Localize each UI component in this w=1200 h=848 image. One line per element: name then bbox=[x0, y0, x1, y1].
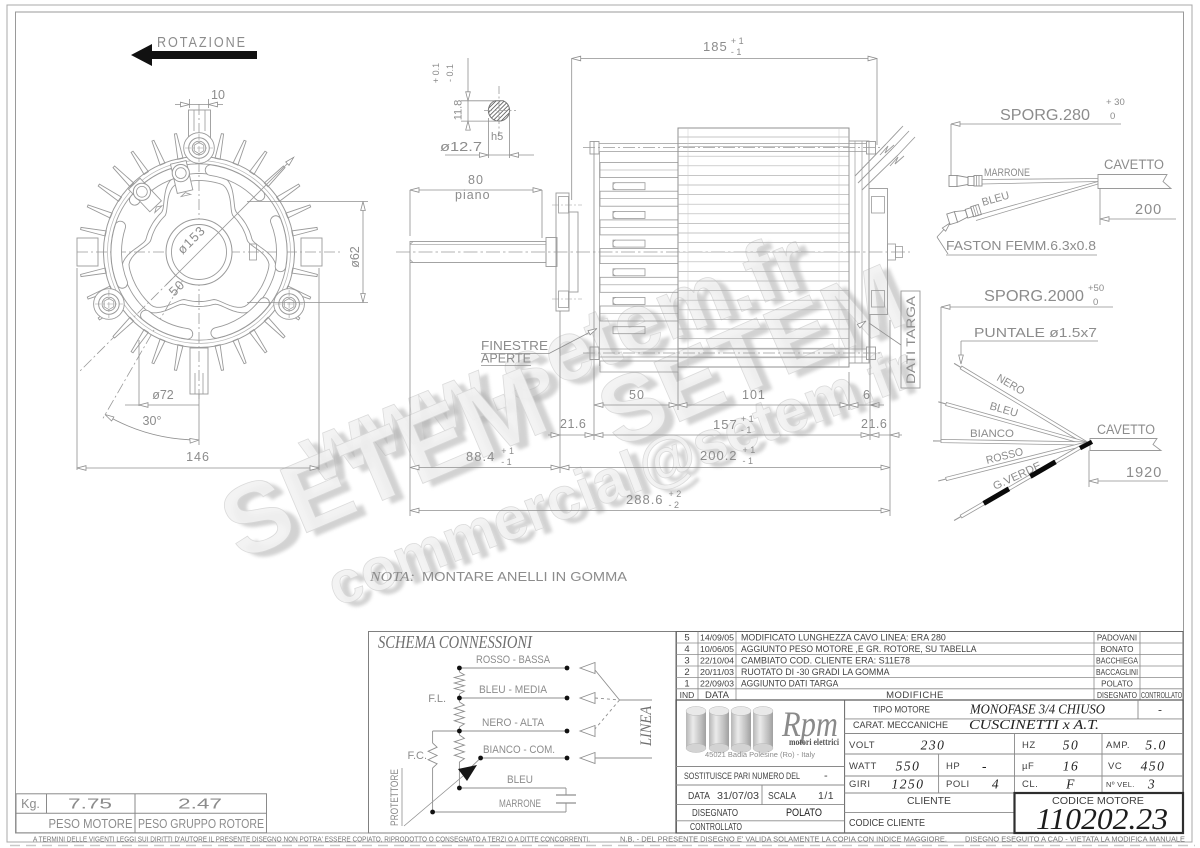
svg-text:200: 200 bbox=[1135, 202, 1162, 218]
svg-text:0: 0 bbox=[1110, 111, 1115, 122]
svg-text:20/11/03: 20/11/03 bbox=[700, 668, 735, 677]
svg-text:SPORG.280: SPORG.280 bbox=[1000, 107, 1090, 124]
svg-text:WATT: WATT bbox=[849, 761, 877, 772]
svg-text:14/09/05: 14/09/05 bbox=[700, 634, 735, 643]
svg-text:SPORG.2000: SPORG.2000 bbox=[984, 288, 1084, 305]
svg-text:µF: µF bbox=[1022, 761, 1034, 772]
svg-text:7.75: 7.75 bbox=[68, 796, 112, 813]
svg-text:200.2: 200.2 bbox=[700, 448, 738, 463]
svg-text:GIRI: GIRI bbox=[849, 779, 871, 790]
svg-text:PADOVANI: PADOVANI bbox=[1097, 634, 1137, 643]
svg-text:SCALA: SCALA bbox=[768, 790, 796, 802]
svg-text:AGGIUNTO PESO MOTORE ,E GR. RO: AGGIUNTO PESO MOTORE ,E GR. ROTORE, SU T… bbox=[741, 644, 977, 655]
svg-text:CAVETTO: CAVETTO bbox=[1104, 157, 1164, 172]
svg-text:BIANCO: BIANCO bbox=[970, 428, 1014, 440]
svg-text:50: 50 bbox=[1063, 738, 1080, 753]
svg-text:VC: VC bbox=[1108, 761, 1122, 772]
svg-text:motori elettrici: motori elettrici bbox=[789, 738, 839, 748]
svg-text:0: 0 bbox=[1093, 297, 1098, 308]
svg-text:TIPO MOTORE: TIPO MOTORE bbox=[873, 705, 930, 716]
svg-text:+ 2: + 2 bbox=[669, 489, 682, 499]
svg-text:ROSSO - BASSA: ROSSO - BASSA bbox=[476, 654, 551, 666]
svg-text:+ 30: + 30 bbox=[1106, 97, 1125, 108]
svg-text:SCHEMA CONNESSIONI: SCHEMA CONNESSIONI bbox=[378, 632, 533, 652]
svg-text:F: F bbox=[1065, 777, 1076, 792]
svg-text:+ 0.1: + 0.1 bbox=[431, 63, 441, 83]
svg-text:Kg.: Kg. bbox=[21, 797, 40, 811]
svg-text:5: 5 bbox=[684, 633, 689, 644]
svg-text:-: - bbox=[1158, 703, 1162, 717]
svg-text:MONTARE ANELLI IN GOMMA: MONTARE ANELLI IN GOMMA bbox=[422, 569, 627, 584]
svg-text:MARRONE: MARRONE bbox=[984, 167, 1030, 179]
svg-text:- 1: - 1 bbox=[741, 425, 752, 435]
svg-text:VOLT: VOLT bbox=[849, 740, 875, 751]
svg-text:MONOFASE 3/4 CHIUSO: MONOFASE 3/4 CHIUSO bbox=[969, 703, 1105, 718]
svg-text:BIANCO - COM.: BIANCO - COM. bbox=[483, 744, 555, 756]
svg-text:30°: 30° bbox=[143, 414, 162, 428]
svg-text:16: 16 bbox=[1063, 759, 1080, 774]
svg-text:+ 1: + 1 bbox=[501, 446, 514, 456]
svg-text:POLI: POLI bbox=[946, 779, 970, 790]
svg-text:BLEU - MEDIA: BLEU - MEDIA bbox=[479, 684, 548, 696]
svg-text:-: - bbox=[824, 770, 828, 782]
svg-text:PESO GRUPPO ROTORE: PESO GRUPPO ROTORE bbox=[138, 817, 264, 831]
svg-text:22/09/03: 22/09/03 bbox=[700, 680, 735, 689]
svg-text:CUSCINETTI x A.T.: CUSCINETTI x A.T. bbox=[969, 718, 1099, 733]
svg-text:1: 1 bbox=[684, 679, 689, 690]
svg-text:HZ: HZ bbox=[1022, 740, 1036, 751]
svg-text:2: 2 bbox=[684, 667, 689, 678]
svg-text:N.B. - DEL PRESENTE DISEGNO E': N.B. - DEL PRESENTE DISEGNO E' VALIDA SO… bbox=[620, 835, 947, 844]
svg-text:45021 Badia Polesine (Ro) - It: 45021 Badia Polesine (Ro) - Italy bbox=[705, 752, 816, 759]
svg-text:+ 1: + 1 bbox=[731, 36, 744, 46]
svg-text:NERO - ALTA: NERO - ALTA bbox=[482, 717, 545, 729]
svg-text:31/07/03: 31/07/03 bbox=[717, 790, 759, 802]
svg-text:21.6: 21.6 bbox=[861, 417, 887, 431]
svg-text:3: 3 bbox=[684, 656, 689, 667]
svg-text:+ 1: + 1 bbox=[741, 414, 754, 424]
svg-text:CODICE CLIENTE: CODICE CLIENTE bbox=[849, 817, 925, 829]
svg-text:CL.: CL. bbox=[1022, 779, 1038, 790]
svg-text:10: 10 bbox=[211, 88, 225, 102]
svg-text:SOSTITUISCE PARI NUMERO DEL: SOSTITUISCE PARI NUMERO DEL bbox=[684, 771, 800, 782]
svg-text:APERTE: APERTE bbox=[481, 352, 531, 366]
svg-text:BACCHIEGA: BACCHIEGA bbox=[1096, 657, 1139, 666]
svg-text:11.8: 11.8 bbox=[453, 100, 465, 121]
svg-text:550: 550 bbox=[896, 759, 921, 774]
svg-text:AMP.: AMP. bbox=[1106, 740, 1130, 751]
svg-text:IND: IND bbox=[680, 690, 695, 700]
svg-text:- 1: - 1 bbox=[501, 457, 512, 467]
svg-text:CAMBIATO COD. CLIENTE ERA: S11: CAMBIATO COD. CLIENTE ERA: S11E78 bbox=[741, 656, 910, 667]
svg-text:piano: piano bbox=[455, 188, 491, 202]
svg-text:3: 3 bbox=[1147, 777, 1156, 792]
svg-text:MARRONE: MARRONE bbox=[499, 798, 541, 810]
svg-text:- 0.1: - 0.1 bbox=[445, 64, 455, 82]
svg-text:MODIFICHE: MODIFICHE bbox=[886, 690, 944, 701]
svg-text:288.6: 288.6 bbox=[626, 492, 664, 507]
svg-text:Nº VEL.: Nº VEL. bbox=[1106, 780, 1135, 789]
svg-text:DATI TARGA: DATI TARGA bbox=[906, 296, 918, 384]
svg-text:BLEU: BLEU bbox=[507, 774, 533, 786]
svg-text:+ 1: + 1 bbox=[743, 445, 756, 455]
svg-text:50: 50 bbox=[629, 388, 645, 402]
svg-text:BONATO: BONATO bbox=[1100, 645, 1133, 654]
svg-text:ø62: ø62 bbox=[348, 246, 362, 268]
svg-text:21.6: 21.6 bbox=[560, 417, 586, 431]
svg-text:CARAT. MECCANICHE: CARAT. MECCANICHE bbox=[853, 720, 948, 731]
svg-text:157: 157 bbox=[713, 417, 738, 432]
svg-text:FASTON FEMM.6.3x0.8: FASTON FEMM.6.3x0.8 bbox=[946, 238, 1096, 253]
svg-text:h5: h5 bbox=[491, 131, 503, 143]
svg-text:PESO MOTORE: PESO MOTORE bbox=[49, 817, 133, 831]
svg-text:1250: 1250 bbox=[892, 777, 925, 792]
svg-text:1920: 1920 bbox=[1126, 465, 1162, 481]
svg-text:POLATO: POLATO bbox=[786, 807, 822, 819]
svg-text:MODIFICATO LUNGHEZZA CAVO LINE: MODIFICATO LUNGHEZZA CAVO LINEA: ERA 280 bbox=[741, 633, 946, 644]
svg-text:22/10/04: 22/10/04 bbox=[700, 657, 735, 666]
svg-text:80: 80 bbox=[468, 173, 484, 187]
svg-text:1/1: 1/1 bbox=[818, 790, 834, 802]
svg-text:RUOTATO DI -30 GRADI LA GOMMA: RUOTATO DI -30 GRADI LA GOMMA bbox=[741, 667, 890, 678]
svg-text:ø72: ø72 bbox=[152, 388, 174, 402]
svg-text:- 1: - 1 bbox=[743, 456, 754, 466]
svg-text:- 2: - 2 bbox=[669, 500, 680, 510]
svg-text:ROTAZIONE: ROTAZIONE bbox=[157, 35, 247, 51]
svg-text:CONTROLLATO: CONTROLLATO bbox=[690, 821, 742, 833]
svg-text:10/06/05: 10/06/05 bbox=[700, 645, 735, 654]
svg-text:DATA: DATA bbox=[705, 690, 730, 701]
svg-text:DATA: DATA bbox=[688, 790, 710, 802]
svg-text:185: 185 bbox=[703, 39, 728, 54]
svg-text:4: 4 bbox=[684, 644, 689, 655]
svg-text:101: 101 bbox=[742, 388, 766, 402]
svg-text:AGGIUNTO DATI TARGA: AGGIUNTO DATI TARGA bbox=[741, 679, 839, 690]
svg-text:230: 230 bbox=[921, 738, 946, 753]
svg-text:450: 450 bbox=[1141, 759, 1166, 774]
svg-text:F.C.: F.C. bbox=[407, 750, 427, 762]
svg-text:BACCAGLINI: BACCAGLINI bbox=[1096, 668, 1138, 677]
svg-text:88.4: 88.4 bbox=[466, 449, 495, 464]
svg-text:PROTETTORE: PROTETTORE bbox=[389, 769, 401, 826]
svg-text:LINEA: LINEA bbox=[638, 706, 655, 747]
svg-text:- 1: - 1 bbox=[731, 47, 742, 57]
svg-text:POLATO: POLATO bbox=[1101, 680, 1133, 689]
svg-text:F.L.: F.L. bbox=[428, 693, 446, 705]
svg-text:110202.23: 110202.23 bbox=[1036, 801, 1168, 836]
svg-text:DISEGNATO: DISEGNATO bbox=[1097, 691, 1137, 700]
svg-text:CLIENTE: CLIENTE bbox=[907, 796, 951, 807]
svg-text:HP: HP bbox=[946, 761, 960, 772]
svg-text:146: 146 bbox=[186, 450, 210, 464]
svg-text:-: - bbox=[982, 759, 988, 774]
svg-text:CAVETTO: CAVETTO bbox=[1097, 422, 1155, 437]
svg-text:DISEGNATO: DISEGNATO bbox=[692, 807, 738, 819]
svg-text:5.0: 5.0 bbox=[1145, 738, 1166, 753]
svg-text:A TERMINI DELLE VIGENTI LEGGI: A TERMINI DELLE VIGENTI LEGGI SUI DIRITT… bbox=[33, 835, 590, 844]
svg-text:DISEGNO ESEGUITO A CAD - VIETA: DISEGNO ESEGUITO A CAD - VIETATA LA MODI… bbox=[965, 835, 1185, 844]
svg-text:+50: +50 bbox=[1088, 283, 1104, 294]
svg-text:6: 6 bbox=[863, 388, 871, 402]
svg-text:NOTA:: NOTA: bbox=[369, 570, 415, 585]
svg-text:2.47: 2.47 bbox=[178, 796, 222, 813]
svg-text:4: 4 bbox=[992, 777, 1000, 792]
svg-text:CONTROLLATO: CONTROLLATO bbox=[1141, 691, 1182, 700]
svg-text:PUNTALE ø1.5x7: PUNTALE ø1.5x7 bbox=[974, 325, 1097, 340]
svg-text:ø12.7: ø12.7 bbox=[440, 139, 482, 154]
